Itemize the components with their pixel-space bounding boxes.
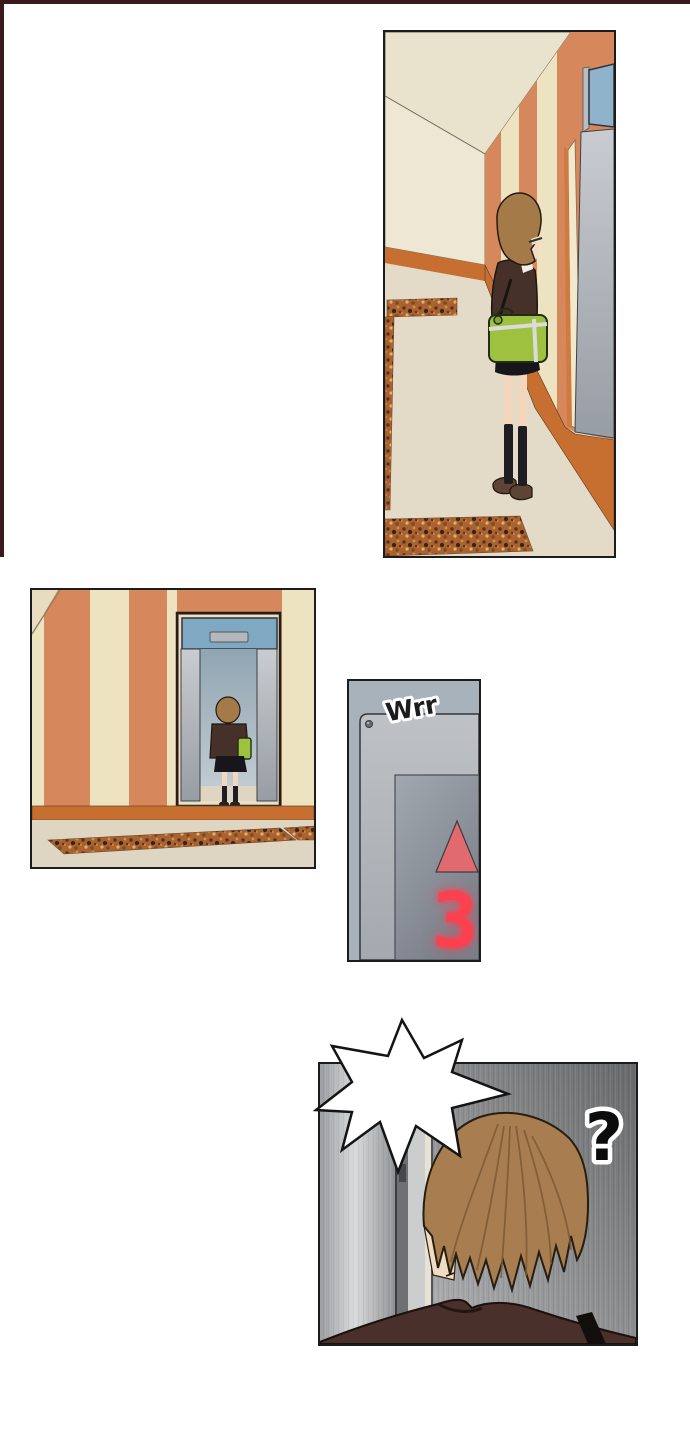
page-frame-left-bar [0, 0, 4, 557]
door-jamb-right [257, 649, 277, 801]
screw [366, 721, 373, 728]
transom-window [589, 64, 614, 127]
skirt [214, 756, 247, 772]
panel-floor-indicator: 3 Wrr [347, 679, 481, 962]
shoulder-bag [489, 309, 547, 362]
leg [504, 372, 513, 426]
comic-page: 3 Wrr [0, 0, 690, 1433]
floor-number-display: 3 [432, 876, 478, 960]
door-jamb-left [181, 649, 200, 801]
shoulder-bag [238, 738, 251, 759]
surprise-burst [298, 1014, 518, 1182]
screw-highlight [367, 722, 369, 724]
burst-shape [316, 1020, 508, 1172]
leg [518, 374, 527, 428]
panel-hallway-wide [383, 30, 616, 558]
page-frame-top-bar [0, 0, 690, 4]
knee-sock [222, 786, 227, 803]
sfx-question-mark: ? [585, 1099, 623, 1176]
leg [233, 772, 238, 788]
panel-elevator-entry [30, 588, 316, 869]
hair [216, 697, 240, 723]
baseboard [32, 806, 314, 820]
elevator [177, 613, 280, 807]
knee-sock [233, 786, 238, 803]
shoe [510, 484, 532, 500]
elevator-floor [200, 786, 257, 801]
knee-sock [504, 424, 513, 484]
transom-frame [583, 67, 589, 132]
leg [222, 772, 227, 788]
knee-sock [518, 426, 527, 486]
transom-plaque [210, 632, 248, 642]
elevator-door [575, 129, 614, 438]
